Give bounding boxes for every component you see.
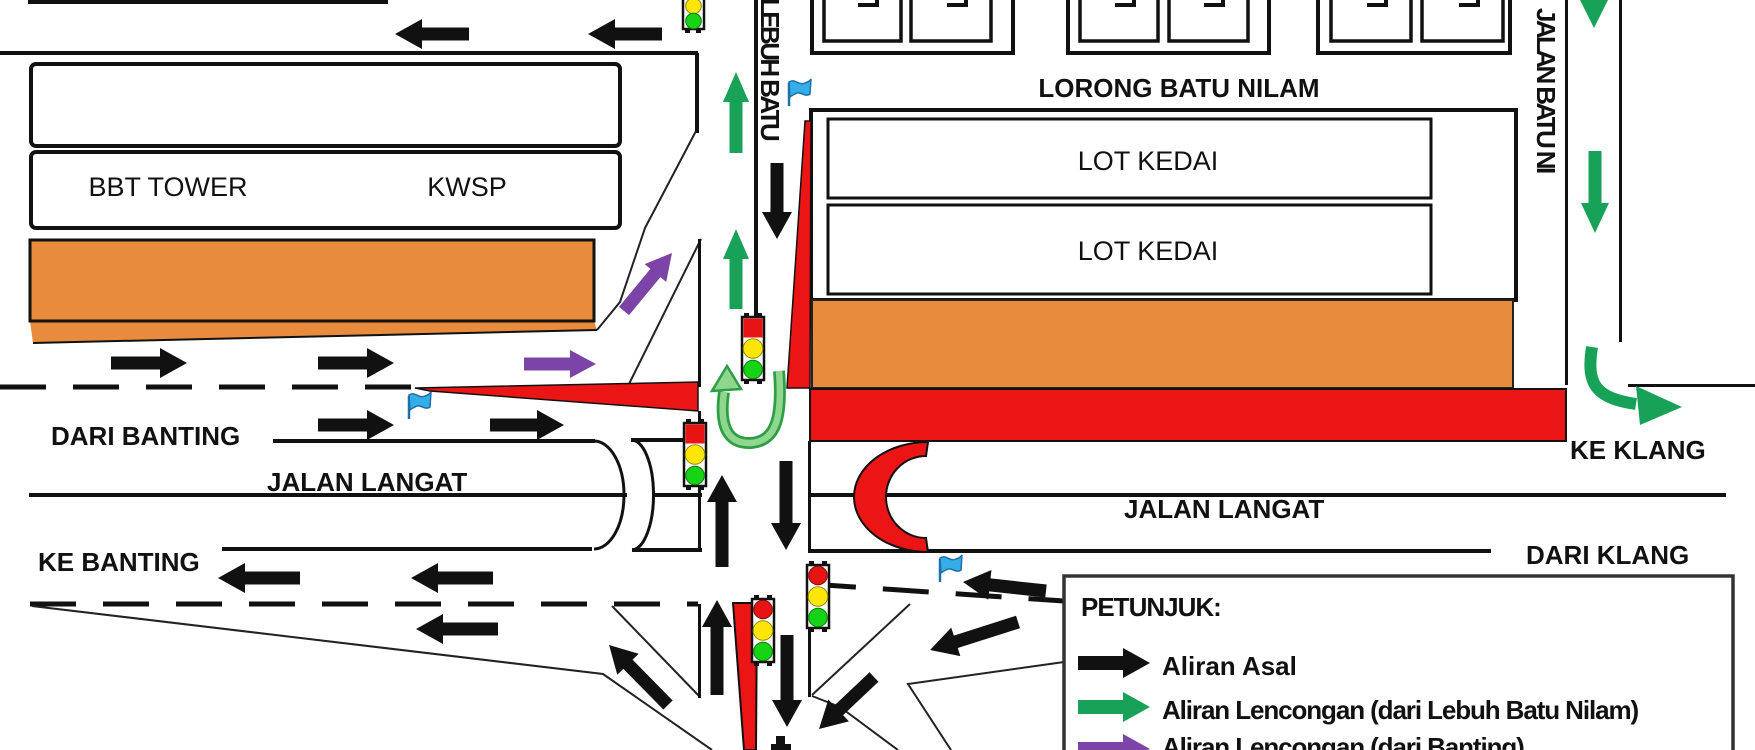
- svg-text:KE BANTING: KE BANTING: [38, 547, 200, 577]
- svg-text:JALAN LANGAT: JALAN LANGAT: [267, 467, 467, 497]
- svg-text:KWSP: KWSP: [427, 172, 507, 202]
- svg-text:JALAN LANGAT: JALAN LANGAT: [1124, 494, 1324, 524]
- svg-text:LOT KEDAI: LOT KEDAI: [1078, 236, 1219, 266]
- svg-text:DARI BANTING: DARI BANTING: [51, 421, 240, 451]
- svg-text:JALAN BATU NI: JALAN BATU NI: [1531, 8, 1561, 173]
- svg-text:DARI KLANG: DARI KLANG: [1526, 540, 1689, 570]
- svg-text:LORONG BATU NILAM: LORONG BATU NILAM: [1038, 73, 1319, 103]
- svg-text:LEBUH BATU: LEBUH BATU: [755, 0, 785, 141]
- svg-text:PETUNJUK:: PETUNJUK:: [1081, 592, 1221, 622]
- svg-text:Aliran Lencongan (dari Lebuh B: Aliran Lencongan (dari Lebuh Batu Nilam): [1162, 695, 1638, 725]
- svg-text:LOT KEDAI: LOT KEDAI: [1078, 146, 1219, 176]
- svg-text:Aliran Lencongan (dari Banting: Aliran Lencongan (dari Banting): [1162, 732, 1524, 750]
- svg-text:KE KLANG: KE KLANG: [1570, 435, 1706, 465]
- svg-text:BBT TOWER: BBT TOWER: [88, 172, 247, 202]
- svg-text:Aliran Asal: Aliran Asal: [1162, 651, 1297, 681]
